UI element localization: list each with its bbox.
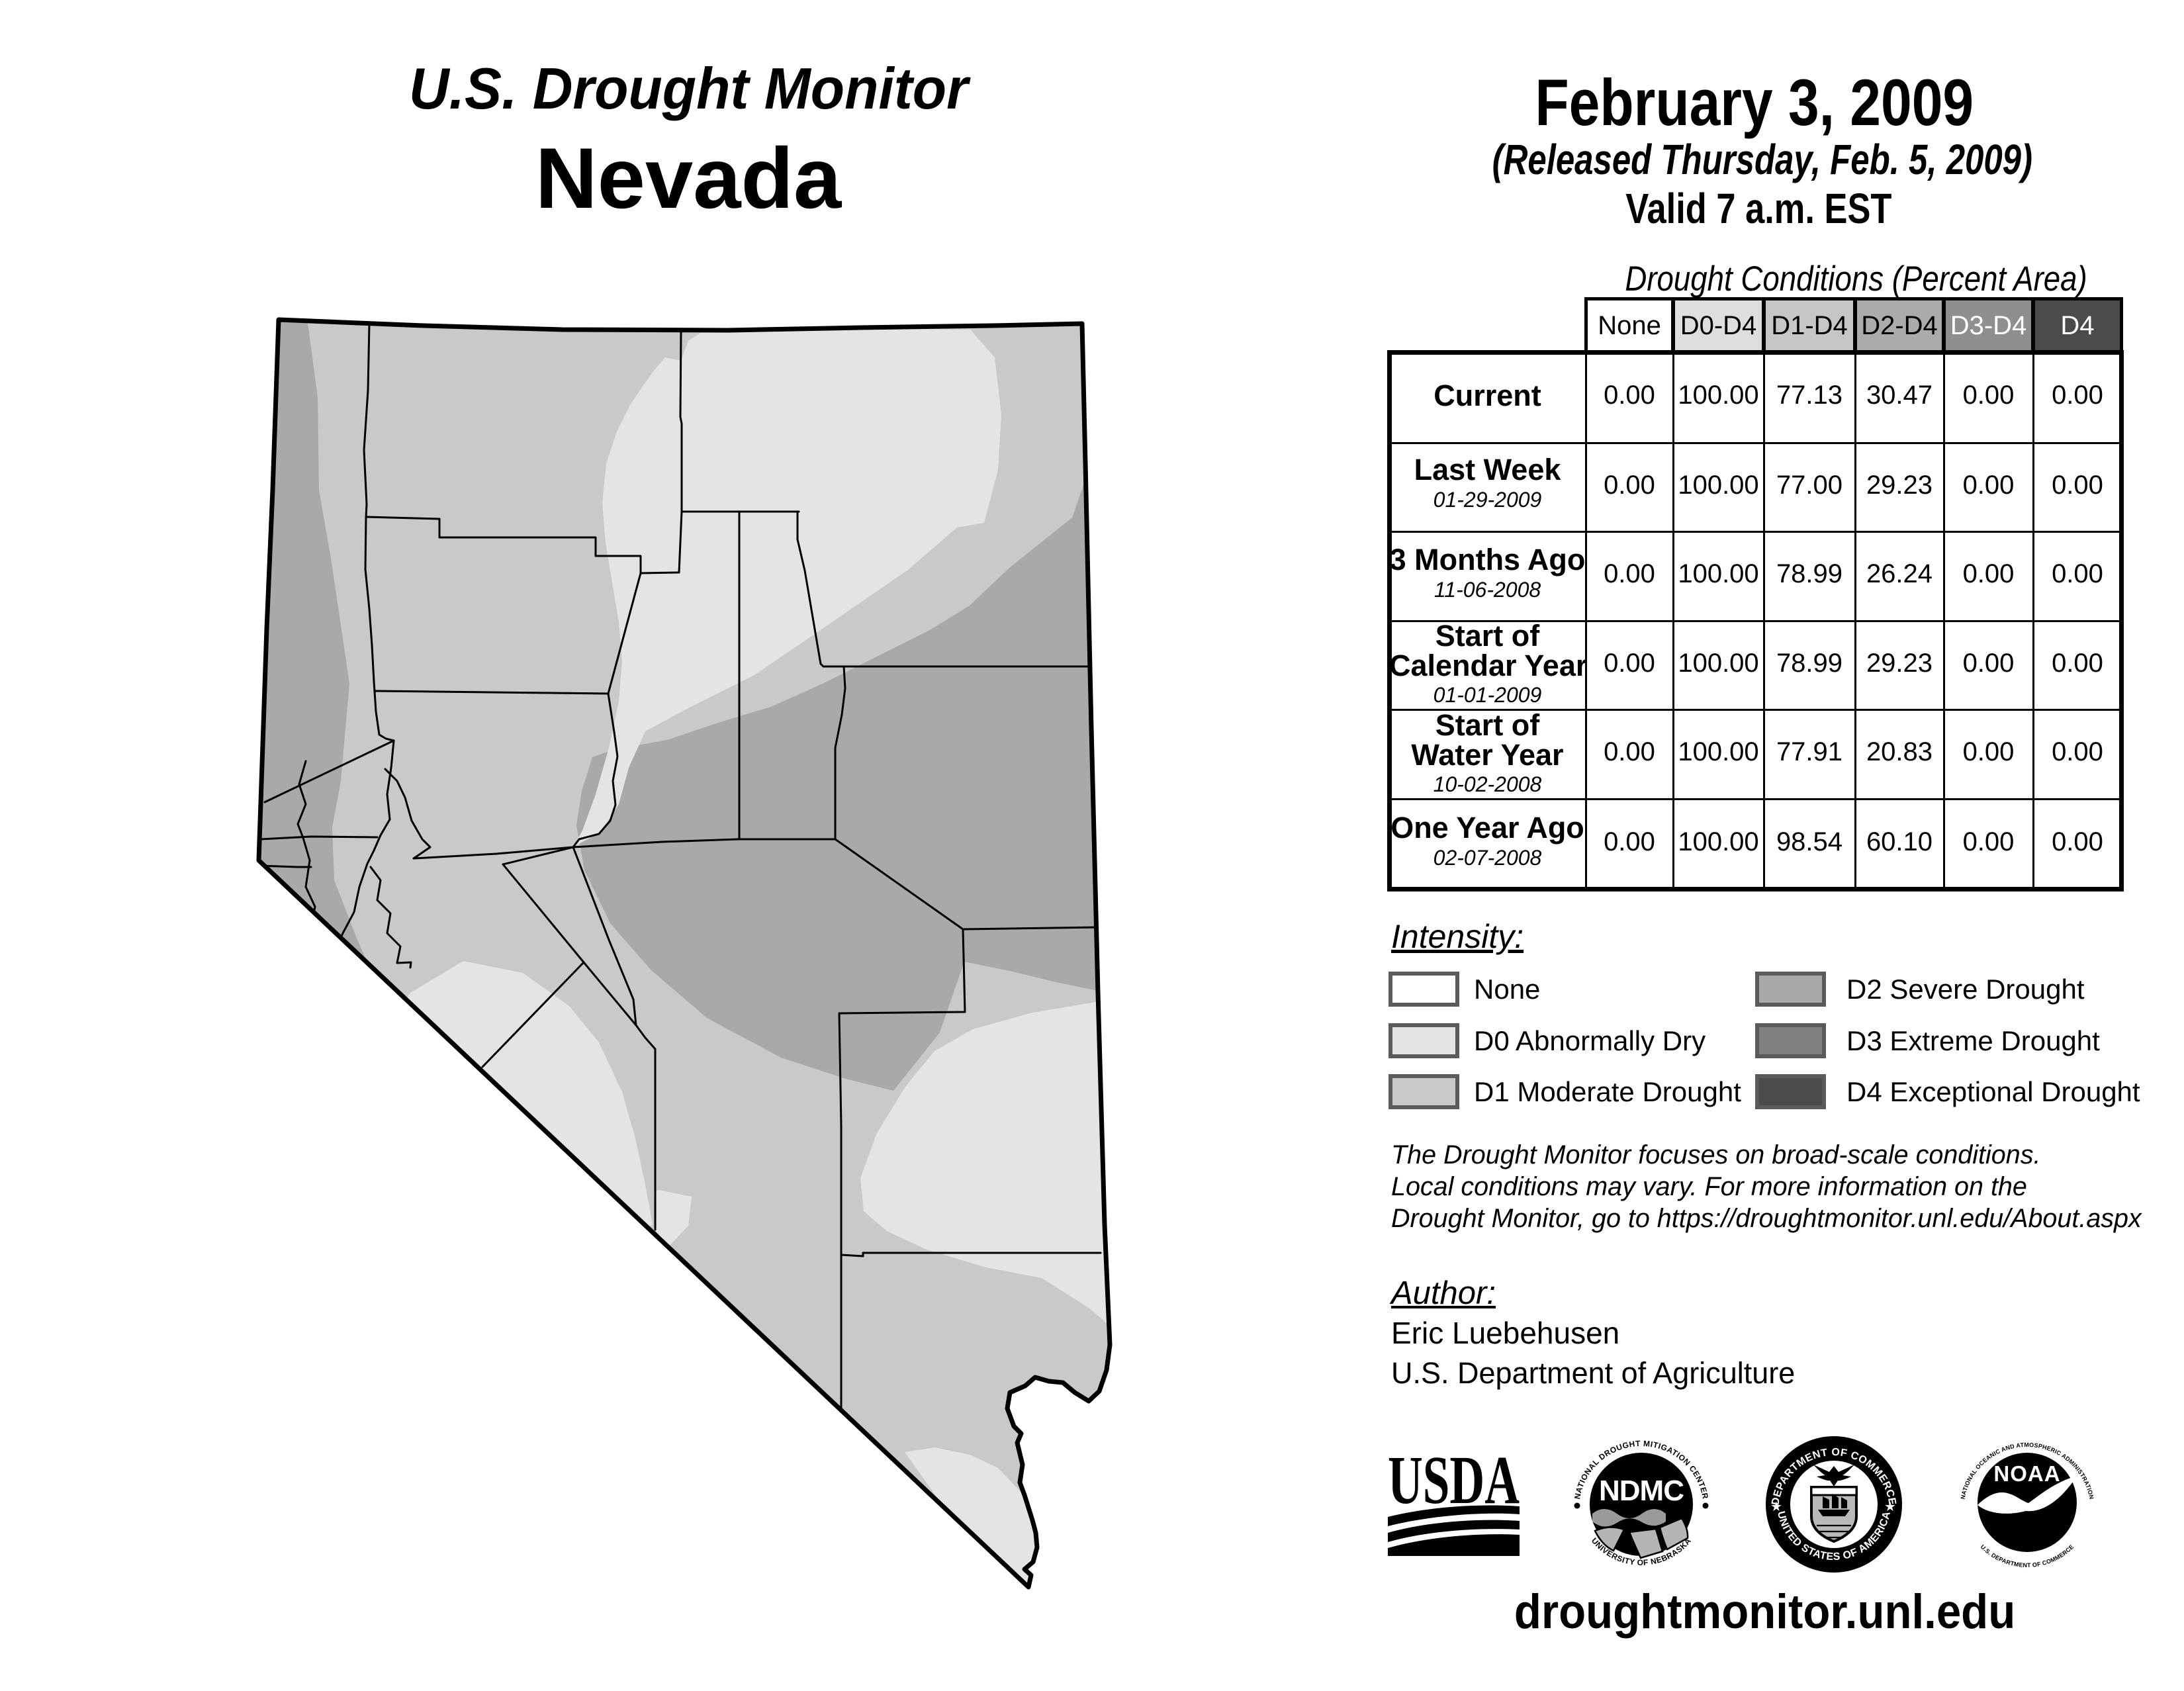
svg-text:★: ★: [1770, 1500, 1782, 1514]
svg-text:NOAA: NOAA: [1993, 1461, 2060, 1486]
svg-text:NDMC: NDMC: [1599, 1475, 1684, 1507]
svg-text:★: ★: [1884, 1500, 1896, 1514]
